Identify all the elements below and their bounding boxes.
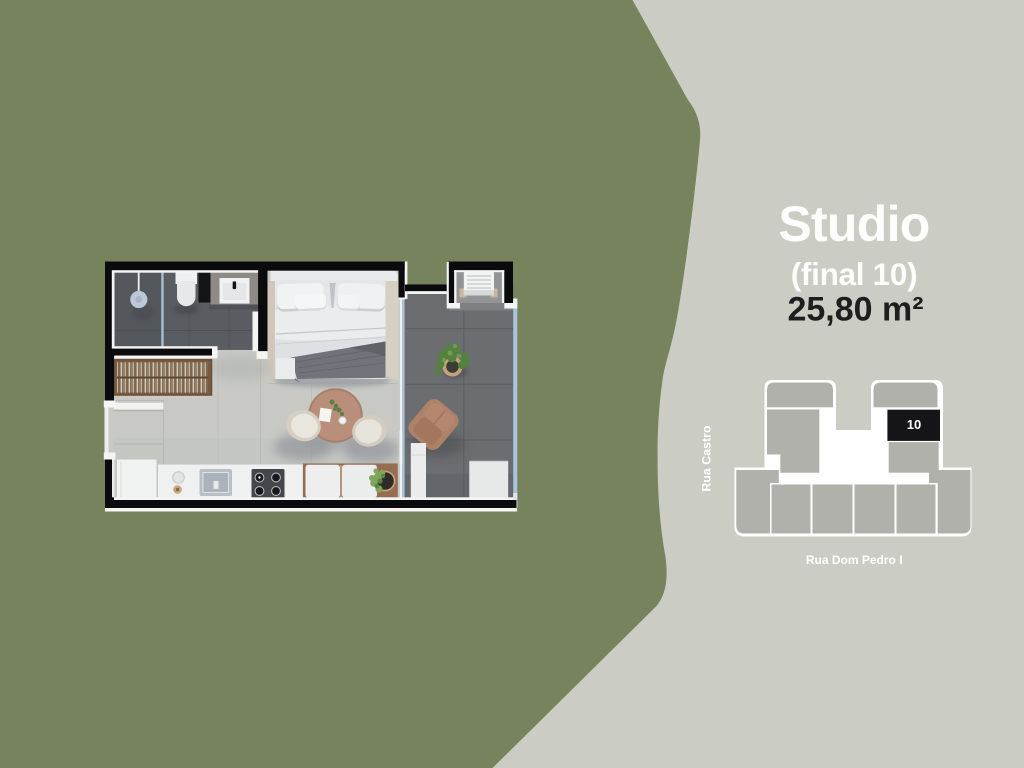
svg-text:Studio: Studio [778, 196, 929, 252]
svg-text:(final 10): (final 10) [791, 256, 918, 292]
svg-text:25,80 m²: 25,80 m² [787, 291, 923, 329]
svg-text:10: 10 [907, 417, 921, 432]
svg-text:Rua Dom Pedro I: Rua Dom Pedro I [806, 553, 903, 567]
svg-text:Rua Castro: Rua Castro [700, 425, 714, 491]
